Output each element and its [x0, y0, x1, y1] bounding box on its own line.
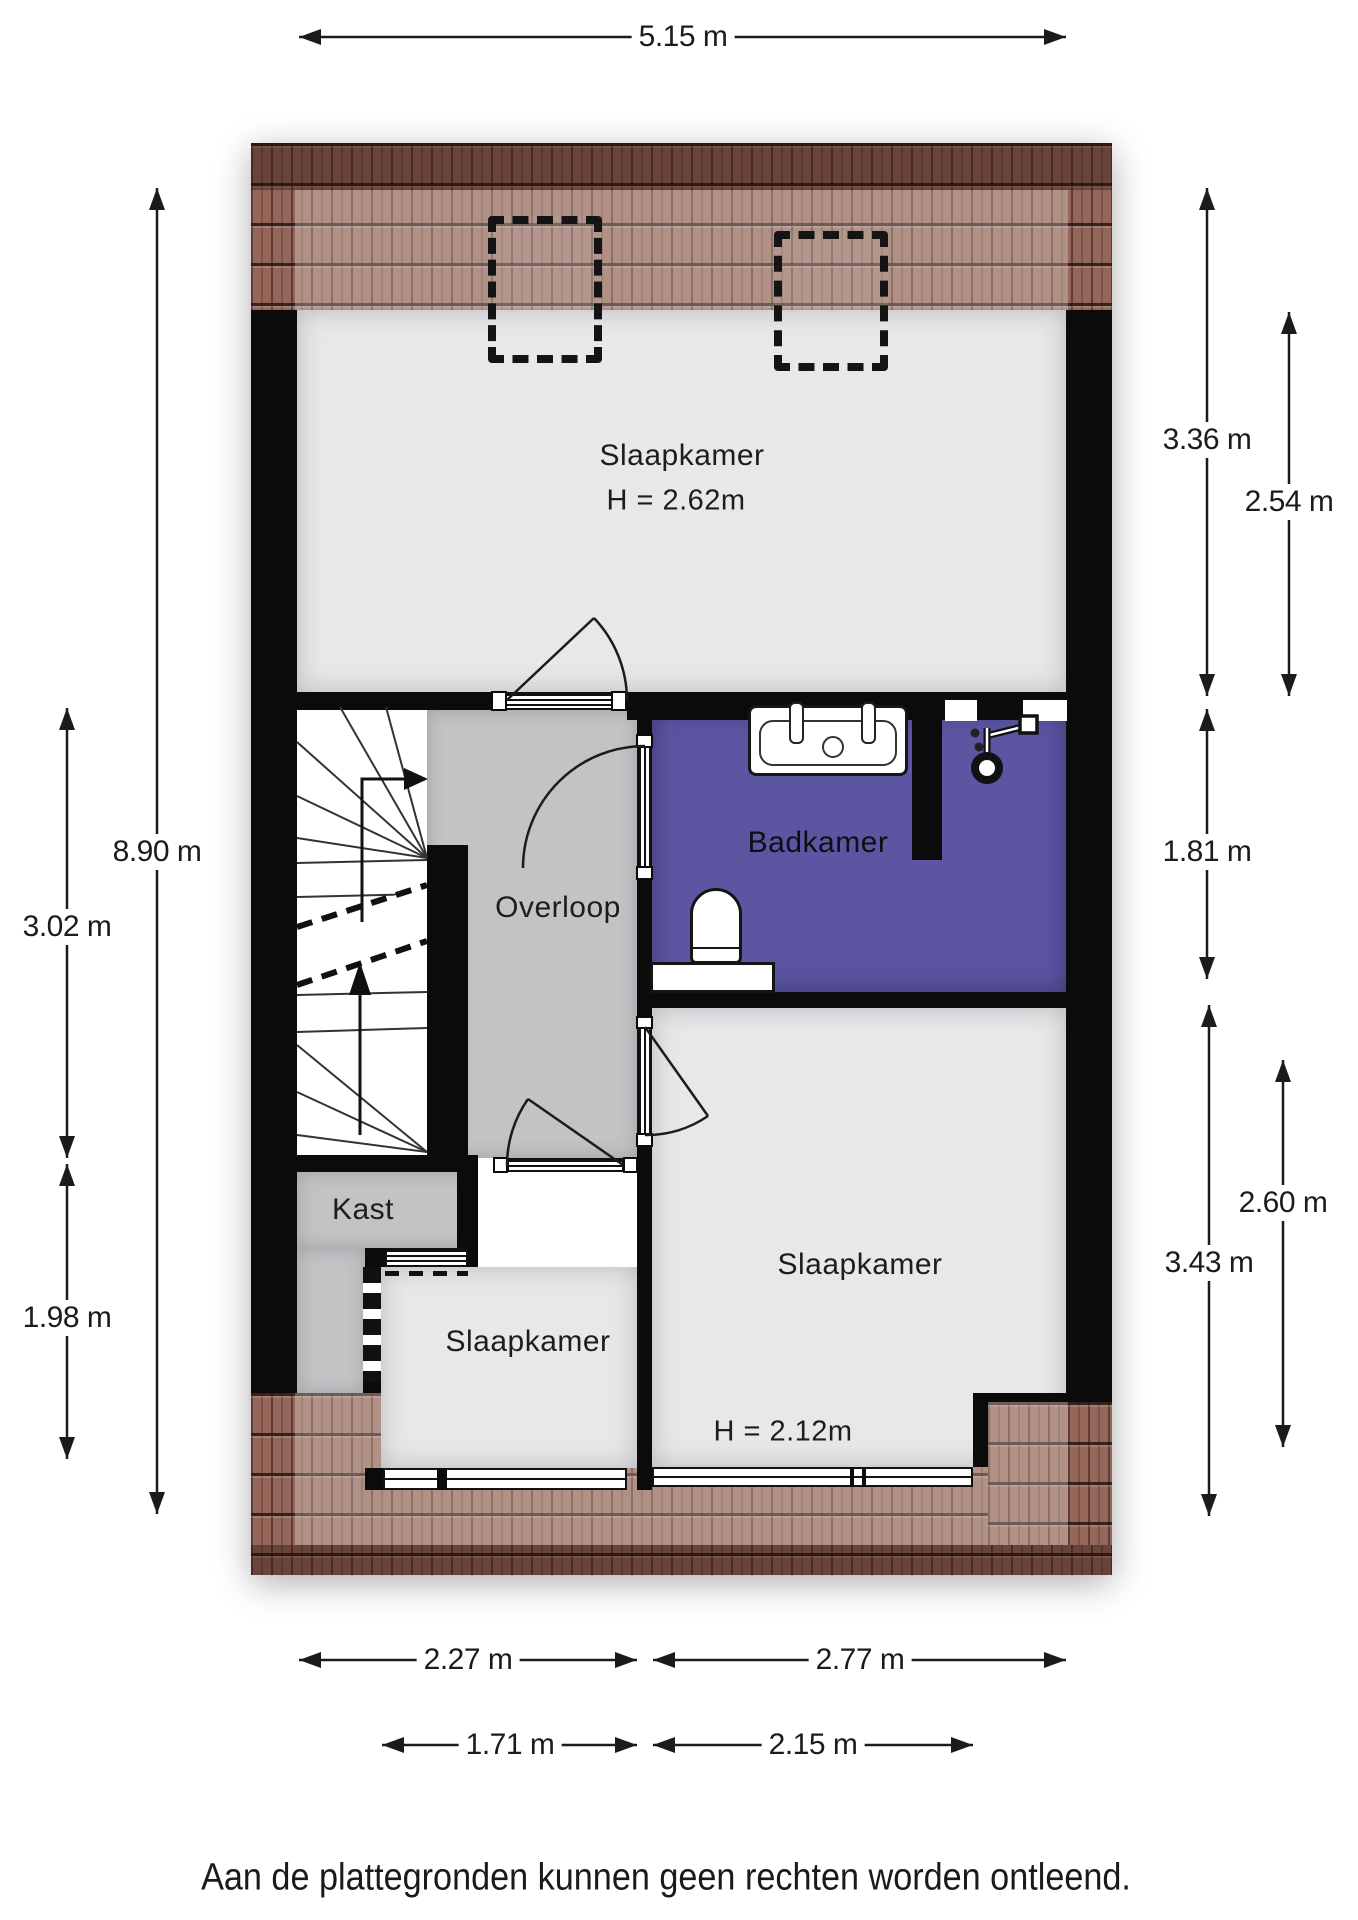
wall-step-vertical: [973, 1393, 988, 1467]
roof-step-glow: [988, 1402, 1068, 1545]
dim-label-bottom-1: 2.27 m: [417, 1642, 520, 1678]
room-kast-floor-lower: [297, 1248, 365, 1393]
dim-label-right-5: 3.43 m: [1158, 1245, 1261, 1281]
room-label-slaapkamer-klein: Slaapkamer: [445, 1325, 610, 1359]
knee-wall-dashed: [363, 1267, 381, 1382]
skylight-icon: [774, 231, 888, 371]
room-label-slaapkamer-groot: Slaapkamer: [777, 1248, 942, 1282]
roof-ridge-top: [251, 143, 1112, 190]
roof-glow-top: [295, 190, 1068, 310]
wall-kast-stub-right: [468, 1248, 478, 1267]
tap-icon: [789, 702, 804, 744]
door-badkamer-panel: [637, 746, 652, 868]
dim-label-left-bottom: 1.98 m: [16, 1300, 119, 1336]
door-slaapkamer-klein-threshold: [507, 1158, 624, 1172]
tap-icon: [861, 702, 876, 744]
room-height-slaapkamer-top: H = 2.62m: [606, 485, 745, 518]
door-jamb: [623, 1157, 638, 1173]
dim-label-bottom-2: 2.77 m: [809, 1642, 912, 1678]
wall-step-horizontal: [973, 1393, 1112, 1402]
wall-window-flank-small: [365, 1468, 383, 1490]
floorplan-page: { "meta": { "type": "floorplan", "floor"…: [0, 0, 1358, 1920]
room-label-slaapkamer-top: Slaapkamer: [599, 439, 764, 473]
wall-between-bedrooms: [637, 1147, 652, 1490]
door-kast-dashed-line: [385, 1271, 468, 1276]
dim-label-left-mid: 3.02 m: [16, 909, 119, 945]
knee-wall-stub: [363, 1382, 381, 1393]
door-jamb: [491, 691, 507, 711]
dim-label-left-total: 8.90 m: [106, 834, 209, 870]
wall-badkamer-bottom: [637, 992, 1066, 1008]
toilet-seat-line: [693, 947, 739, 949]
dim-label-right-1: 3.36 m: [1156, 422, 1259, 458]
wall-kast-stub-left: [365, 1248, 385, 1267]
room-slaapkamer-klein-floor: [381, 1267, 637, 1468]
door-jamb: [636, 734, 653, 748]
room-label-badkamer: Badkamer: [748, 826, 889, 860]
window-mullion: [850, 1467, 854, 1487]
wall-under-stairs: [297, 1155, 478, 1172]
staircase-area: [297, 707, 427, 1155]
room-label-kast: Kast: [332, 1193, 394, 1227]
room-height-slaapkamer-groot: H = 2.12m: [713, 1416, 852, 1449]
wall-left: [251, 310, 297, 1393]
door-jamb: [636, 866, 653, 880]
dim-label-bottom-4: 2.15 m: [762, 1727, 865, 1763]
disclaimer-text: Aan de plattegronden kunnen geen rechten…: [201, 1857, 1131, 1900]
roof-ridge-bottom: [251, 1545, 1112, 1575]
dim-label-right-3: 1.81 m: [1156, 834, 1259, 870]
window-mullion: [437, 1468, 447, 1490]
wall-kast-right: [457, 1172, 478, 1248]
drain-icon: [822, 736, 844, 758]
toilet-cistern: [650, 962, 775, 993]
window-mullion: [862, 1467, 866, 1487]
wall-right: [1066, 310, 1112, 1402]
skylight-icon: [488, 216, 602, 363]
dim-label-right-4: 2.60 m: [1232, 1185, 1335, 1221]
wall-middle: [251, 692, 1112, 710]
window-slaapkamer-klein: [383, 1468, 627, 1490]
door-kast: [385, 1248, 468, 1267]
door-jamb: [636, 1133, 653, 1147]
washbasin: [748, 705, 908, 776]
door-jamb: [636, 1016, 653, 1029]
shower-niche-right: [1023, 700, 1067, 721]
wall-stairs-stub: [427, 845, 468, 1155]
door-jamb: [493, 1157, 508, 1173]
shower-niche-left: [945, 700, 977, 721]
toilet-bowl: [690, 888, 742, 964]
dim-label-right-2: 2.54 m: [1238, 484, 1341, 520]
room-label-overloop: Overloop: [495, 891, 621, 925]
door-slaapkamer-groot-panel: [637, 1027, 652, 1135]
door-jamb: [611, 691, 627, 711]
window-slaapkamer-groot: [652, 1467, 973, 1487]
door-slaapkamer-top-threshold: [493, 692, 627, 710]
dim-label-top-width: 5.15 m: [632, 19, 735, 55]
wall-shower-stub: [912, 710, 942, 860]
dim-label-bottom-3: 1.71 m: [459, 1727, 562, 1763]
